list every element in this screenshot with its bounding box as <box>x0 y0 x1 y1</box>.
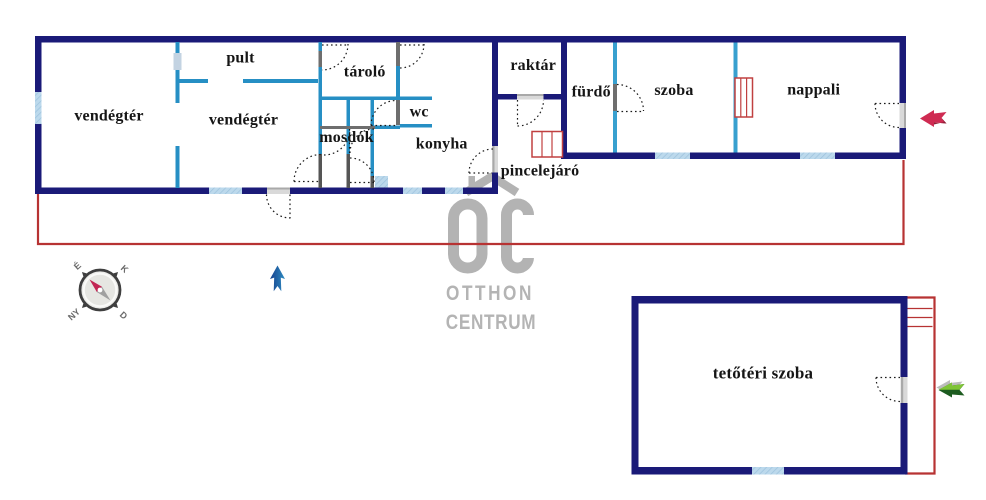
svg-text:szoba: szoba <box>654 82 693 99</box>
svg-text:vendégtér: vendégtér <box>74 108 143 125</box>
svg-text:tetőtéri szoba: tetőtéri szoba <box>713 364 814 383</box>
svg-text:NY: NY <box>66 307 82 323</box>
svg-text:raktár: raktár <box>510 57 556 74</box>
svg-text:mosdók: mosdók <box>319 129 374 146</box>
svg-text:vendégtér: vendégtér <box>209 112 278 129</box>
svg-text:tároló: tároló <box>344 64 386 81</box>
svg-text:É: É <box>72 260 83 271</box>
svg-text:K: K <box>119 263 131 275</box>
svg-text:pult: pult <box>226 50 255 67</box>
svg-text:OTTHON: OTTHON <box>446 281 534 305</box>
svg-text:CENTRUM: CENTRUM <box>446 310 536 334</box>
svg-text:konyha: konyha <box>416 136 468 153</box>
svg-text:fürdő: fürdő <box>572 84 611 101</box>
svg-text:nappali: nappali <box>787 82 840 99</box>
svg-text:pincelejáró: pincelejáró <box>501 163 580 180</box>
svg-text:wc: wc <box>410 103 429 120</box>
svg-text:D: D <box>118 310 130 322</box>
